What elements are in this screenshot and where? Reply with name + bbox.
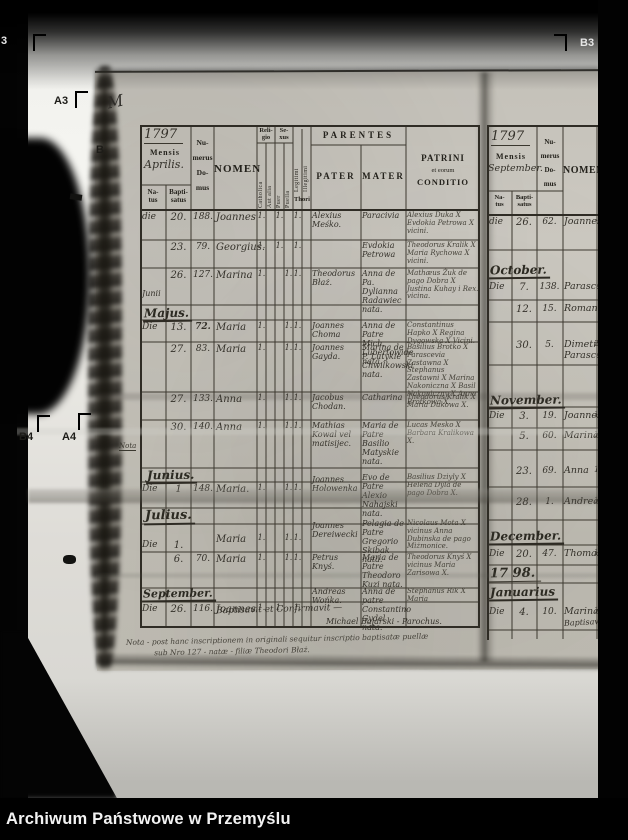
column-header-natus: Na- tus [140, 188, 166, 204]
right-register-table: 1797 Mensis September. Na- tus Bapti- sa… [487, 125, 600, 640]
cell-catholica-mark: 1. [257, 212, 266, 221]
cell-thori-mark: 1. [293, 322, 302, 331]
cell-day: 4. [513, 607, 535, 618]
cell-mater: Anna de Pa. Dylianna Radawiec nata. [362, 270, 405, 315]
month-section-label-januarius: Januarius [489, 585, 558, 602]
cell-house-number: 83. [192, 344, 214, 354]
column-header-mensis: Mensis [488, 152, 534, 161]
cell-die: Die [142, 540, 165, 550]
cell-house-number: 69. [538, 466, 561, 476]
column-header-numerus-domus: Nu- merus Do- mus [537, 135, 563, 191]
cell-house-number: 10. [538, 607, 561, 617]
cell-pater: Theodorus Błaż. [312, 270, 360, 288]
cell-day: 12. [513, 304, 535, 315]
cell-nomen: Thomas [564, 549, 597, 560]
register-row: 30. 5. Dimetrius Parascevia 2 [487, 332, 600, 366]
column-header-religio: Reli- gio [257, 127, 275, 141]
register-row: Die 4. 10. Marina 1 Baptisavit [487, 605, 600, 630]
corner-bracket-top-right-icon [554, 34, 567, 51]
cell-die: Die [489, 607, 511, 617]
column-header-legitimi: Legitimi [294, 130, 300, 192]
cell-thori-mark: 1. [293, 554, 302, 563]
cell-house-number: 19. [538, 411, 561, 421]
cell-day: 13. [167, 322, 190, 333]
month-name: Aprilis. [144, 159, 184, 171]
cell-house-number: 188. [192, 212, 214, 222]
register-row: Die 20. 47. Thomas 1 [487, 547, 600, 565]
frame-marker-a4: A4 [62, 432, 76, 443]
cell-pater: Alexius Meśko. [312, 212, 360, 230]
column-header-nomen: NOMEN [214, 163, 257, 175]
cell-nomen: Parascevia [564, 282, 597, 293]
cell-day: 1. [167, 540, 190, 551]
cell-pater: Mathias Kowal vel matisijec. [312, 422, 360, 449]
column-header-pater: PATER [311, 171, 361, 181]
column-header-thori: Thori [293, 196, 311, 203]
cell-die: Die [489, 411, 511, 421]
frame-marker-b4: B4 [19, 432, 33, 443]
frame-marker-top-right: B3 [580, 38, 594, 49]
month-section-label-julius: Julius. [144, 508, 195, 526]
corner-bracket-a3-icon [75, 91, 88, 108]
cell-sexus-mark: 1. [284, 534, 293, 543]
cell-mater: Evdokia Petrowa [362, 242, 405, 260]
cell-day: 3. [513, 411, 535, 422]
cell-day: 30. [513, 340, 535, 351]
cell-die: Die [489, 282, 511, 292]
cell-sexus-mark: 1. [275, 212, 284, 221]
film-scratch-band [28, 489, 600, 503]
cell-house-number: 138. [538, 282, 561, 292]
cell-die-annotation: Junii [142, 290, 168, 299]
register-row: 26. Junii 127. Marina 1. 1. 1. Theodorus… [140, 268, 480, 305]
column-header-baptisatus: Bapti- satus [166, 188, 191, 204]
cell-day: 20. [513, 549, 535, 560]
cell-pater: Joannes Gayda. [312, 344, 360, 362]
cell-house-number: 70. [192, 554, 214, 564]
register-row: die 26. 62. Joannes [487, 215, 600, 249]
cell-sexus-mark: 1. [275, 242, 284, 251]
cell-nomen: Georgius. [216, 242, 258, 253]
film-scratch-band [96, 573, 600, 578]
cell-day: 26. [167, 270, 190, 281]
cell-house-number: 62. [538, 217, 561, 227]
cell-nomen: Maria [216, 322, 258, 333]
book-spine-core [98, 72, 111, 660]
cell-pater: Joannes Choma [312, 322, 360, 340]
cell-nomen: Joannes [216, 212, 258, 223]
cell-day: 20. [167, 212, 190, 223]
film-edge-mark [63, 555, 76, 564]
left-register-table: 1797 Mensis Aprilis. Na- tus Bapti- satu… [140, 125, 480, 628]
cell-day: 27. [167, 344, 190, 355]
cell-day: 6. [167, 554, 190, 565]
cell-day: 23. [167, 242, 190, 253]
month-section-label-september: September. [142, 586, 216, 602]
cell-sexus-mark: 1. [284, 554, 293, 563]
cell-nomen: Maria [216, 554, 258, 565]
column-header-mensis: Mensis [142, 148, 188, 157]
film-scratch-band [96, 393, 600, 400]
cell-house-number: 79. [192, 242, 214, 252]
column-header-sexus: Se- xus [275, 127, 293, 141]
cell-patrini: Alexius Duka X Evdokia Petrowa X vicini. [407, 212, 479, 235]
cell-die: Die [489, 549, 511, 559]
cell-nomen: Romanus [564, 304, 597, 315]
archival-photo-frame: 1797 Mensis Aprilis. Na- tus Bapti- satu… [0, 0, 628, 840]
register-row: 23. 79. Georgius. 1. 1. 1. Evdokia Petro… [140, 240, 480, 268]
corner-bracket-top-left-icon [33, 34, 46, 51]
corner-bracket-a4-icon [78, 413, 91, 430]
cell-thori-mark: 1. [293, 534, 302, 543]
cell-thori-mark: 1. [293, 344, 302, 353]
month-section-label-december: December. [489, 528, 564, 545]
month-section-label-junius: Junius. [146, 468, 198, 485]
column-header-patrini: PATRINI [406, 153, 480, 163]
cell-day: 26. [513, 217, 535, 228]
register-row: Die 3. 19. Joannes 1 [487, 409, 600, 429]
baptisavit-line: Baptisavit [564, 618, 597, 629]
cell-day: 7. [513, 282, 535, 293]
cell-die: die [489, 217, 511, 227]
cell-house-number: 127. [192, 270, 214, 280]
cell-day: 26. [167, 604, 190, 615]
register-row: 27. 83. Maria 1. 1. 1. Joannes Gayda. Ma… [140, 342, 480, 392]
register-row: Die 7. 138. Parascevia [487, 280, 600, 302]
month-name: September. [488, 164, 543, 175]
cell-patrini: Mathæus Żuk de pago Dobra X Justina Kuha… [407, 270, 479, 301]
column-header-illegitimi: Illegitimi [303, 130, 309, 192]
register-row: 23. 69. Anna 1 [487, 464, 600, 488]
cell-sexus-mark: 1. [284, 322, 293, 331]
cell-sexus-mark: 1. [284, 344, 293, 353]
cell-house-number: 116. [192, 604, 214, 614]
cell-house-number: 5. [538, 340, 561, 350]
year-label: 1797 [144, 128, 183, 144]
cell-catholica-mark: 1. [257, 242, 266, 251]
cell-die: Die [142, 322, 165, 332]
cell-mater: Maria de Patre Theodoro Kuzi nata. [362, 554, 405, 590]
column-header-et-eorum: et eorum [406, 167, 480, 174]
year-label: 1797 [491, 130, 530, 146]
cell-day: 23. [513, 466, 535, 477]
cell-house-number: 47. [538, 549, 561, 559]
column-header-conditio: CONDITIO [406, 177, 480, 187]
corner-bracket-b4-icon [37, 415, 50, 432]
cell-catholica-mark: 1. [257, 270, 266, 279]
register-row: die 20. 188. Joannes 1. 1. 1. Alexius Me… [140, 210, 480, 240]
margin-nota-label: Nota [119, 442, 136, 451]
cell-nomen: Maria [216, 534, 258, 545]
column-header-natus: Na- tus [487, 194, 512, 208]
column-header-puer: Puer [276, 147, 282, 208]
register-row: Die 1. Maria 1. 1. 1. Joannes Dereiwecki… [140, 524, 480, 552]
cell-thori-mark: 1. [293, 212, 302, 221]
register-row: Die 26. 116. Joannes 1. 1. 1. Andreas Wo… [140, 602, 480, 628]
cell-house-number: 72. [192, 322, 214, 332]
cell-die: Die [142, 604, 165, 614]
register-row: 6. 70. Maria 1. 1. 1. Petrus Knyś. Maria… [140, 552, 480, 588]
film-scratch-band [0, 428, 628, 435]
cell-mater: Marina de P. Lutykie Chwilkowski nata. [362, 344, 405, 380]
cell-patrini: Theodorus Kralik X Maria Rychowa X vicin… [407, 242, 479, 265]
film-right-border [598, 0, 628, 840]
cell-catholica-mark: 1. [257, 344, 266, 353]
cell-catholica-mark: 1. [257, 554, 266, 563]
register-row: Die 13. 72. Maria 1. 1. 1. Joannes Choma… [140, 320, 480, 342]
month-section-label-majus: Majus. [143, 306, 192, 323]
column-header-baptisatus: Bapti- satus [512, 194, 537, 208]
cell-patrini: Nicolaus Mota X vicinus Anna Dubinska de… [407, 520, 479, 551]
archive-caption: Archiwum Państwowe w Przemyślu [6, 810, 291, 829]
cell-nomen: Anna [564, 466, 597, 477]
column-header-numerus-domus: Nu- merus Do- mus [191, 135, 214, 195]
column-header-nomen: NOMEN [563, 165, 597, 176]
cell-nomen: Joannes [564, 411, 597, 422]
cell-patrini: Stephanus Rik X Maria [407, 588, 479, 604]
cell-pater: Joannes Dereiwecki [312, 522, 360, 540]
cell-nomen: Marina [216, 270, 258, 281]
cell-die: die [142, 212, 165, 222]
column-header-catholica: Catholica [258, 147, 264, 208]
cell-nomen: Maria [216, 344, 258, 355]
parochus-signature: Michael Bajarski - Parochus. [326, 618, 481, 627]
cell-thori-mark: 1. [293, 242, 302, 251]
cell-mater: Paracivia [362, 212, 405, 221]
column-header-puella: Puella [285, 147, 291, 208]
cell-nomen: Dimetrius Parascevia [564, 340, 597, 361]
cell-pater: Petrus Knyś. [312, 554, 360, 572]
month-section-label-october: October. [489, 263, 550, 280]
cell-nomen: Joannes [564, 217, 597, 228]
cell-catholica-mark: 1. [257, 322, 266, 331]
cell-nomen: Marina [564, 607, 597, 618]
cell-catholica-mark: 1. [257, 534, 266, 543]
cell-sexus-mark: 1. [284, 270, 293, 279]
column-header-mater: MATER [361, 171, 406, 181]
cell-thori-mark: 1. [293, 270, 302, 279]
cell-house-number: 15. [538, 304, 561, 314]
column-header-parentes: PARENTES [311, 130, 406, 140]
frame-marker-a3: A3 [54, 96, 68, 107]
column-header-aut-alia: Aut alia [267, 147, 273, 208]
frame-marker-top-left: 3 [1, 36, 7, 47]
frame-marker-b: B [96, 145, 104, 156]
register-row: 12. 15. Romanus [487, 302, 600, 322]
